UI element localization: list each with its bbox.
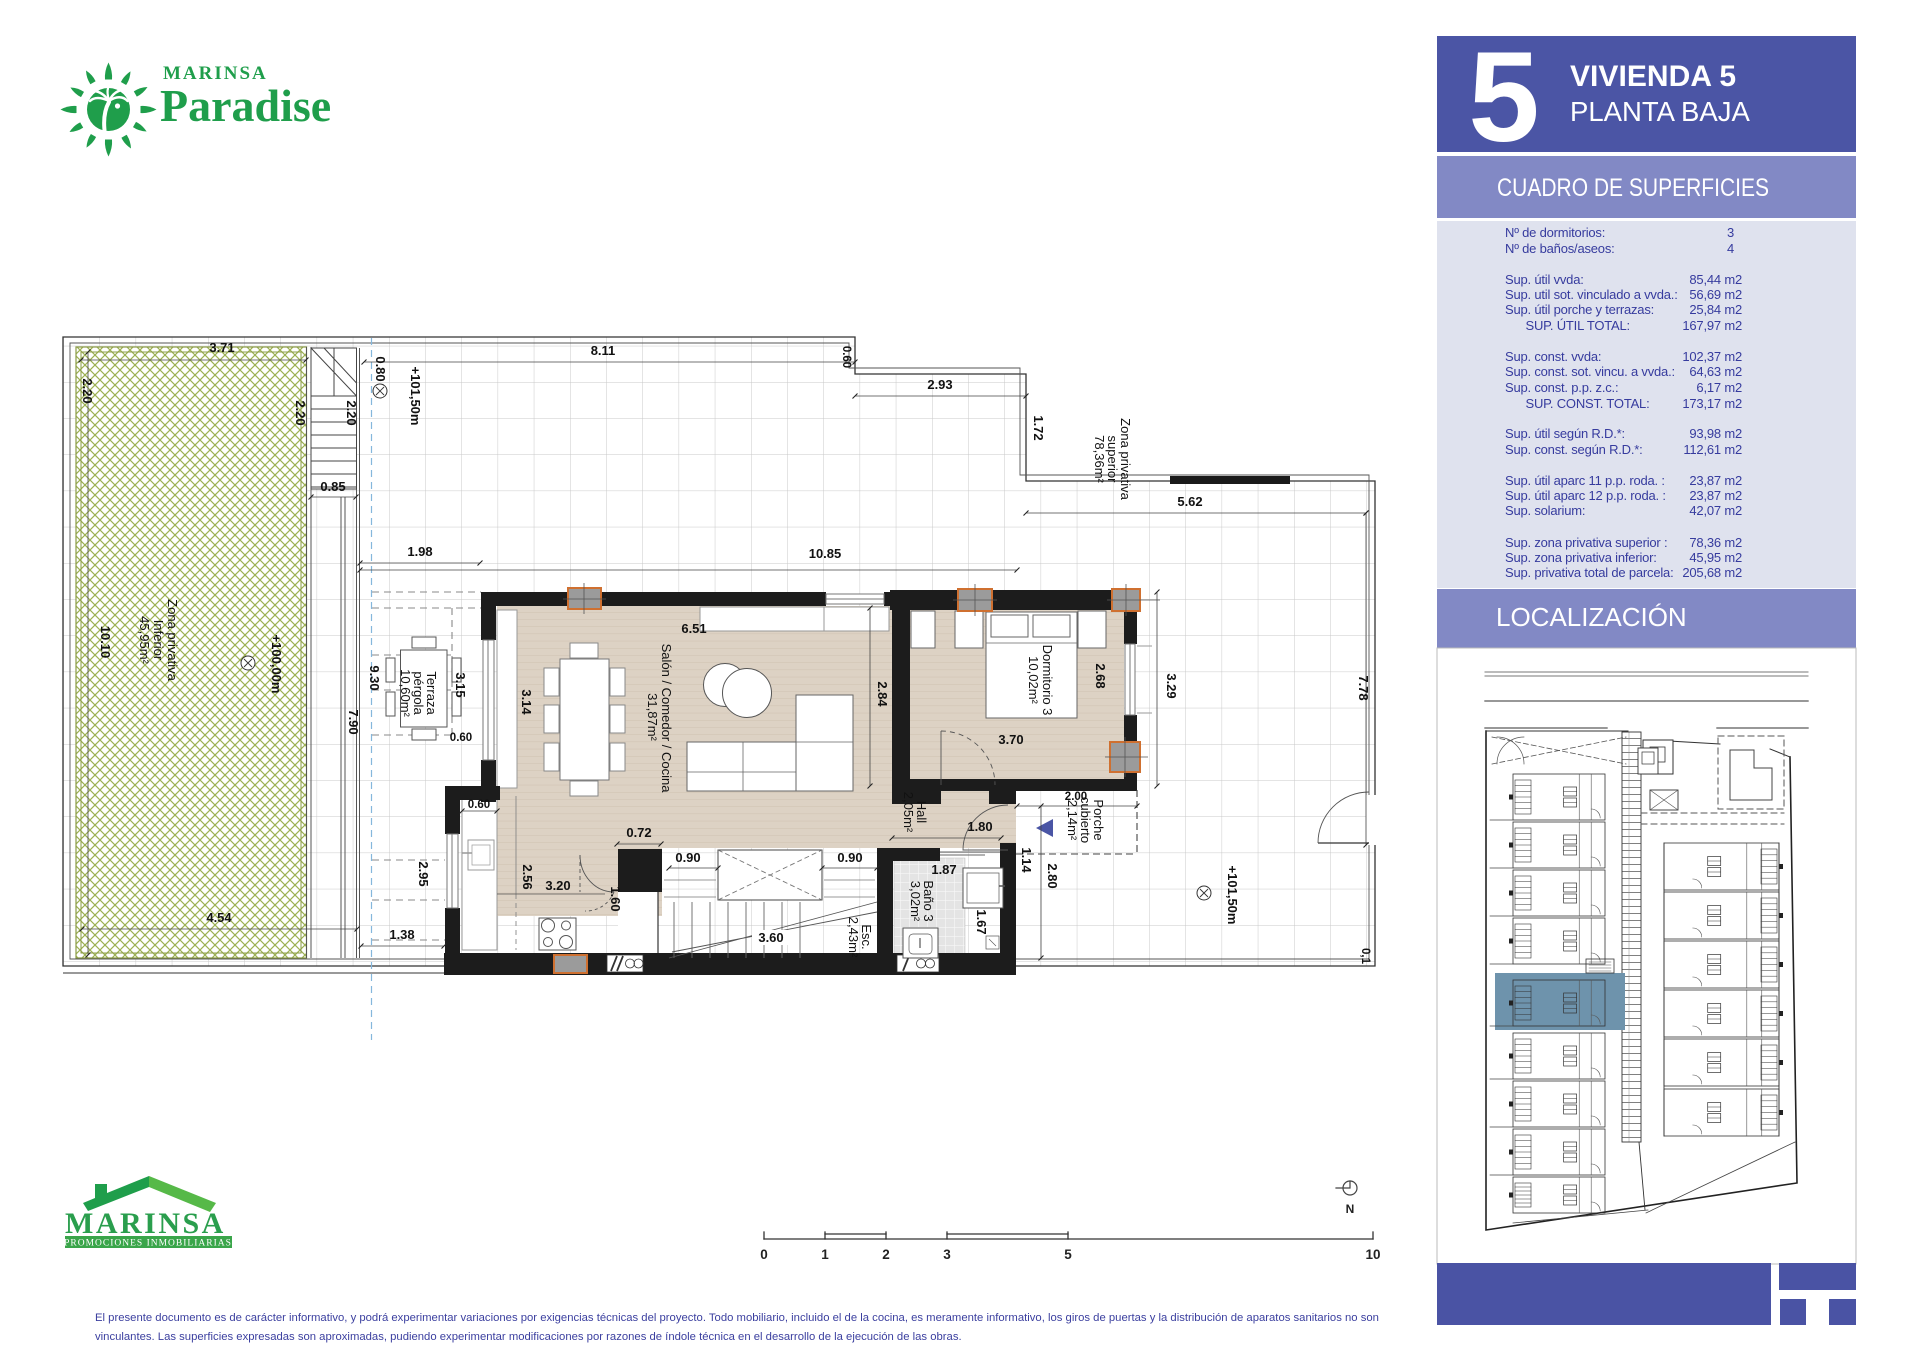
svg-text:Sup. útil según R.D.*:: Sup. útil según R.D.*:: [1505, 426, 1625, 441]
svg-text:31,87m²: 31,87m²: [645, 693, 660, 741]
svg-text:N: N: [1346, 1202, 1355, 1216]
svg-text:5: 5: [1468, 26, 1539, 169]
svg-text:1.38: 1.38: [389, 927, 414, 942]
svg-text:6.51: 6.51: [681, 621, 706, 636]
svg-text:2.84: 2.84: [875, 681, 890, 707]
svg-text:5: 5: [1064, 1247, 1072, 1262]
svg-text:10,02m²: 10,02m²: [1026, 656, 1041, 704]
svg-text:3.29: 3.29: [1164, 673, 1179, 698]
svg-text:PROMOCIONES INMOBILIARIAS: PROMOCIONES INMOBILIARIAS: [64, 1239, 232, 1249]
svg-text:Sup. const. según R.D.*:: Sup. const. según R.D.*:: [1505, 442, 1643, 457]
svg-text:1.67: 1.67: [974, 909, 989, 934]
svg-text:78,36m²: 78,36m²: [1092, 435, 1107, 483]
svg-text:0.60: 0.60: [468, 799, 490, 811]
svg-text:3.71: 3.71: [209, 340, 234, 355]
svg-text:2,05m²: 2,05m²: [901, 792, 916, 833]
svg-text:Inferior: Inferior: [151, 620, 166, 661]
svg-text:85,44 m2: 85,44 m2: [1689, 272, 1742, 287]
svg-text:10: 10: [1365, 1247, 1380, 1262]
svg-text:2.56: 2.56: [520, 864, 535, 889]
svg-text:167,97 m2: 167,97 m2: [1682, 318, 1742, 333]
svg-text:MARINSA: MARINSA: [65, 1207, 226, 1240]
svg-text:1: 1: [821, 1247, 829, 1262]
svg-text:Sup. zona privativa inferior:: Sup. zona privativa inferior:: [1505, 550, 1657, 565]
svg-text:102,37 m2: 102,37 m2: [1682, 349, 1742, 364]
svg-text:1.80: 1.80: [967, 819, 992, 834]
svg-text:2.95: 2.95: [416, 861, 431, 886]
svg-text:Zona privativa: Zona privativa: [165, 599, 180, 681]
svg-text:0.60: 0.60: [450, 732, 472, 744]
svg-text:Sup. útil vvda:: Sup. útil vvda:: [1505, 272, 1584, 287]
svg-text:Salón / Comedor / Cocina: Salón / Comedor / Cocina: [659, 644, 674, 794]
svg-text:2.20: 2.20: [293, 400, 308, 425]
svg-text:+101,50m: +101,50m: [408, 367, 423, 426]
svg-text:2,43m²: 2,43m²: [846, 917, 861, 958]
svg-text:0.72: 0.72: [626, 825, 651, 840]
svg-text:1.72: 1.72: [1031, 415, 1046, 440]
svg-text:2,14m²: 2,14m²: [1065, 800, 1080, 841]
svg-text:Sup. útil porche y terrazas:: Sup. útil porche y terrazas:: [1505, 302, 1654, 317]
svg-text:45,95m²: 45,95m²: [137, 616, 152, 664]
svg-text:0.90: 0.90: [675, 850, 700, 865]
svg-text:0: 0: [760, 1247, 768, 1262]
svg-text:0,1: 0,1: [1359, 948, 1371, 965]
svg-text:3.15: 3.15: [453, 672, 468, 697]
svg-text:VIVIENDA 5: VIVIENDA 5: [1570, 60, 1736, 93]
svg-text:0.85: 0.85: [320, 479, 345, 494]
svg-text:Sup. privativa total de parcel: Sup. privativa total de parcela:: [1505, 565, 1673, 580]
svg-text:Sup. const. vvda:: Sup. const. vvda:: [1505, 349, 1601, 364]
svg-text:PLANTA BAJA: PLANTA BAJA: [1570, 96, 1750, 127]
svg-text:10,60m²: 10,60m²: [398, 669, 413, 717]
svg-text:56,69 m2: 56,69 m2: [1689, 287, 1742, 302]
svg-text:112,61 m2: 112,61 m2: [1683, 442, 1742, 457]
svg-text:Nº de baños/aseos:: Nº de baños/aseos:: [1505, 241, 1615, 256]
svg-text:1.14: 1.14: [1019, 847, 1034, 873]
svg-text:3.60: 3.60: [758, 930, 783, 945]
svg-text:23,87 m2: 23,87 m2: [1689, 488, 1742, 503]
svg-text:9.30: 9.30: [367, 665, 382, 690]
svg-text:CUADRO DE SUPERFICIES: CUADRO DE SUPERFICIES: [1497, 174, 1769, 202]
svg-text:7.78: 7.78: [1356, 675, 1371, 700]
svg-text:Sup. zona privativa superior :: Sup. zona privativa superior :: [1505, 535, 1667, 550]
svg-text:3.14: 3.14: [519, 689, 534, 715]
svg-text:6,17 m2: 6,17 m2: [1696, 380, 1742, 395]
svg-text:vinculantes. Las superficies e: vinculantes. Las superficies expresadas …: [95, 1331, 962, 1343]
svg-text:2.20: 2.20: [344, 400, 359, 425]
svg-text:10.10: 10.10: [98, 626, 113, 659]
svg-text:1.60: 1.60: [608, 886, 623, 911]
svg-text:Sup. const. sot. vincu. a vvda: Sup. const. sot. vincu. a vvda.:: [1505, 364, 1675, 379]
svg-text:El presente documento es de ca: El presente documento es de carácter inf…: [95, 1312, 1379, 1324]
svg-text:+100,00m: +100,00m: [269, 635, 284, 694]
svg-text:2.80: 2.80: [1045, 863, 1060, 888]
svg-text:0.90: 0.90: [837, 850, 862, 865]
svg-text:Paradise: Paradise: [160, 80, 331, 131]
svg-text:4: 4: [1727, 241, 1734, 256]
svg-text:Sup. util sot. vinculado a vvd: Sup. util sot. vinculado a vvda.:: [1505, 287, 1678, 302]
svg-text:78,36 m2: 78,36 m2: [1689, 535, 1742, 550]
svg-text:SUP. CONST. TOTAL:: SUP. CONST. TOTAL:: [1505, 396, 1650, 411]
svg-text:LOCALIZACIÓN: LOCALIZACIÓN: [1496, 602, 1687, 632]
svg-text:Dormitorio 3: Dormitorio 3: [1040, 645, 1055, 716]
svg-text:2.93: 2.93: [927, 377, 952, 392]
svg-text:45,95 m2: 45,95 m2: [1689, 550, 1742, 565]
svg-text:Nº de dormitorios:: Nº de dormitorios:: [1505, 225, 1605, 240]
svg-text:93,98 m2: 93,98 m2: [1689, 426, 1742, 441]
svg-text:0.80: 0.80: [373, 356, 388, 381]
svg-text:Sup. útil aparc 11 p.p. roda.: Sup. útil aparc 11 p.p. roda. :: [1505, 473, 1665, 488]
svg-text:3: 3: [1727, 225, 1734, 240]
svg-text:173,17 m2: 173,17 m2: [1682, 396, 1742, 411]
svg-text:8.11: 8.11: [591, 343, 616, 358]
svg-text:42,07 m2: 42,07 m2: [1689, 503, 1742, 518]
svg-text:2.20: 2.20: [80, 378, 95, 403]
svg-text:SUP. ÚTIL TOTAL:: SUP. ÚTIL TOTAL:: [1505, 318, 1630, 333]
svg-text:205,68 m2: 205,68 m2: [1682, 565, 1742, 580]
svg-text:3,02m²: 3,02m²: [908, 881, 923, 922]
svg-text:25,84 m2: 25,84 m2: [1689, 302, 1742, 317]
svg-text:5.62: 5.62: [1177, 494, 1202, 509]
svg-text:7.90: 7.90: [346, 709, 361, 734]
svg-text:Sup. const. p.p. z.c.:: Sup. const. p.p. z.c.:: [1505, 380, 1618, 395]
svg-text:3: 3: [943, 1247, 951, 1262]
svg-text:1.98: 1.98: [407, 544, 432, 559]
svg-text:2: 2: [882, 1247, 890, 1262]
svg-text:0.60: 0.60: [840, 346, 852, 368]
svg-text:1.87: 1.87: [931, 862, 956, 877]
svg-text:Sup. útil aparc 12 p.p. roda.: Sup. útil aparc 12 p.p. roda. :: [1505, 488, 1666, 503]
svg-text:Sup. solarium:: Sup. solarium:: [1505, 503, 1585, 518]
svg-text:+101,50m: +101,50m: [1225, 866, 1240, 925]
svg-text:4.54: 4.54: [206, 910, 232, 925]
svg-text:2.68: 2.68: [1093, 663, 1108, 688]
svg-text:3.20: 3.20: [545, 878, 570, 893]
svg-text:23,87 m2: 23,87 m2: [1689, 473, 1742, 488]
svg-text:3.70: 3.70: [998, 732, 1023, 747]
svg-text:10.85: 10.85: [809, 546, 842, 561]
svg-text:64,63 m2: 64,63 m2: [1689, 364, 1742, 379]
